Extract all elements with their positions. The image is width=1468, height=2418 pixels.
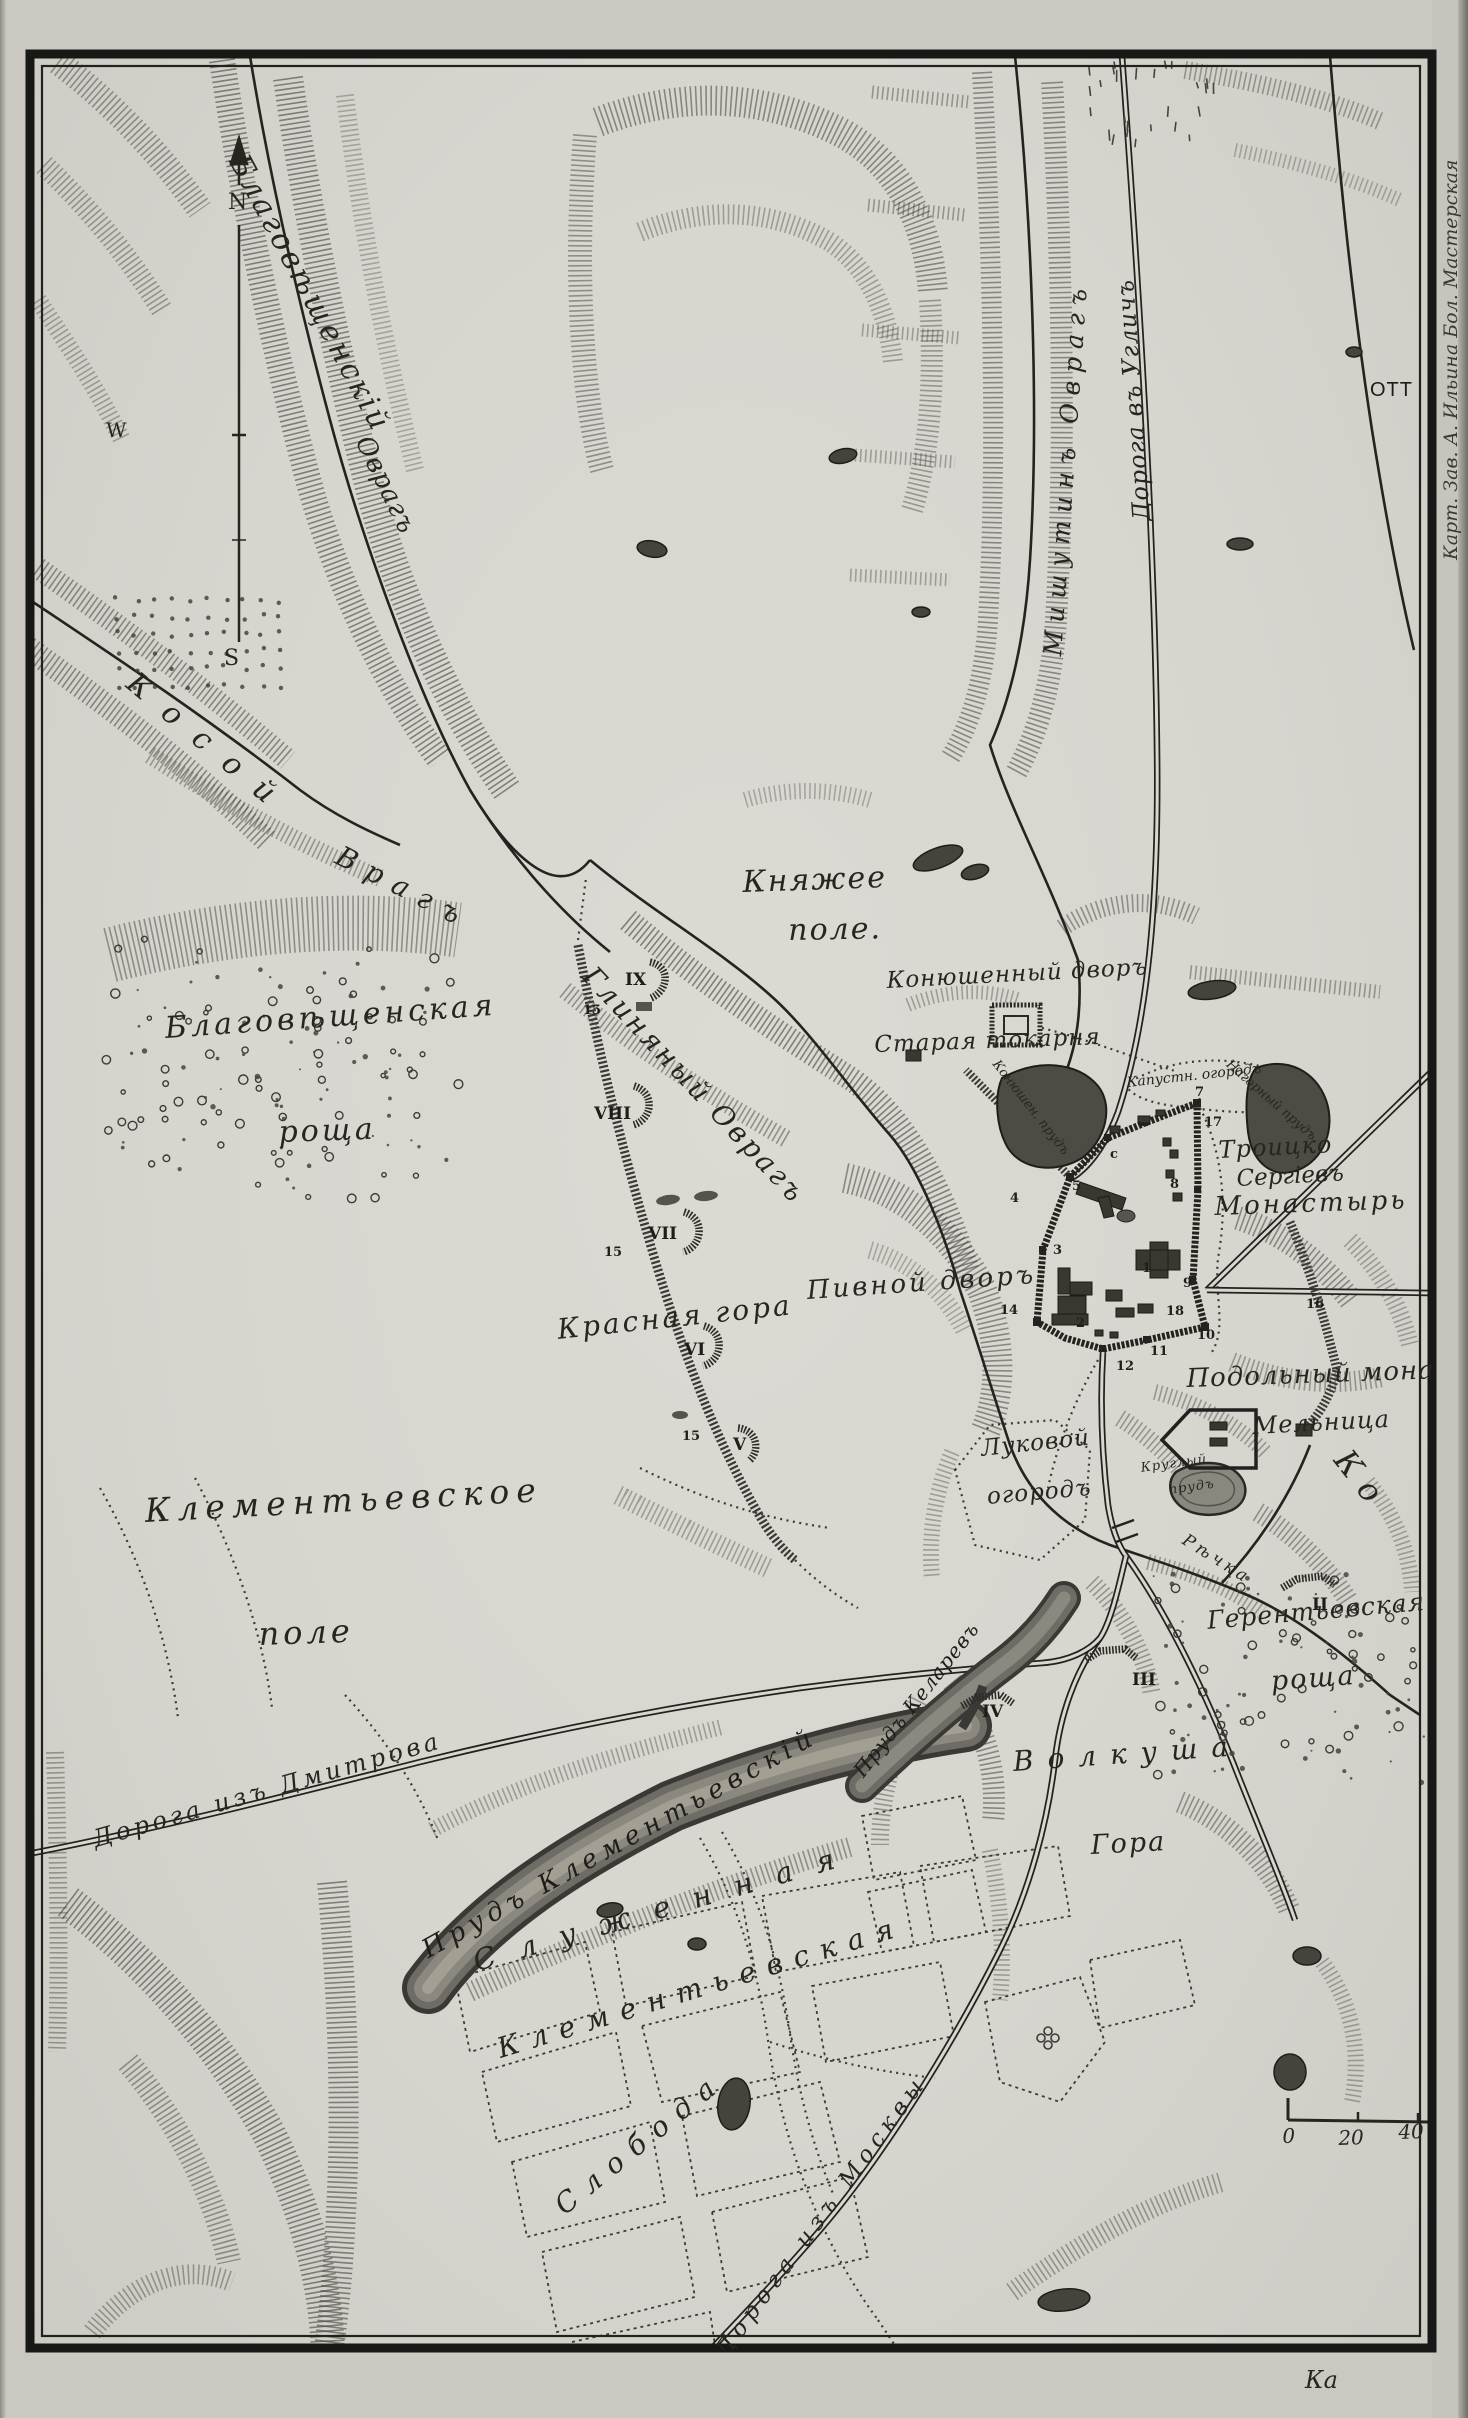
- battery-ii: II: [1312, 1597, 1328, 1614]
- ref-9: 9: [1183, 1277, 1192, 1290]
- compass-west-label: W: [106, 420, 127, 440]
- label-blagoveshchensky-ovrag: Благовѣщенскій: [224, 150, 396, 437]
- label-konyushenny-prud: Конюшен. прудъ: [990, 1058, 1072, 1157]
- battery-vi: VI: [684, 1342, 705, 1359]
- label-blagoveshchensky-ovrag-2: Оврагъ: [351, 432, 420, 538]
- label-kosoy-vrag-2: Врагъ: [331, 842, 476, 934]
- label-knyazhee-pole: Княжее: [742, 863, 887, 898]
- ref-17: 17: [1204, 1116, 1222, 1129]
- label-prud-kelarev: Прудъ Келаревъ: [850, 1618, 983, 1780]
- label-pivnoy-dvor: Пивной дворъ: [806, 1262, 1037, 1304]
- ref-c: c: [1110, 1148, 1118, 1161]
- label-monastery-1: Троицко: [1218, 1132, 1333, 1162]
- scale-20: 20: [1338, 2127, 1364, 2148]
- label-krugly-prud: Круглый: [1140, 1453, 1208, 1475]
- ref-15-b: 15: [604, 1246, 622, 1259]
- label-glinyany-ovrag: Глиняный Оврагъ: [578, 962, 811, 1209]
- ref-18: 18: [1166, 1305, 1184, 1318]
- label-nagorny-prud: Нагорный прудъ: [1223, 1058, 1318, 1143]
- label-klementyevskoe-pole: Клементьевское: [144, 1473, 543, 1527]
- label-melnitsa: Мельница: [1252, 1407, 1391, 1438]
- battery-v: V: [733, 1437, 746, 1454]
- label-road-to-uglich: Дорога въ Угличъ: [1113, 278, 1154, 522]
- edge-fragment-ott: ОТТ: [1370, 380, 1413, 400]
- battery-ix: IX: [625, 972, 646, 989]
- ref-4: 4: [1010, 1192, 1019, 1205]
- label-konyushenny-dvor: Конюшенный дворъ: [886, 956, 1148, 993]
- label-knyazhee-pole-2: поле.: [788, 914, 882, 946]
- label-lukovoy-ogorod-2: огородъ: [986, 1477, 1092, 1509]
- label-road-from-moscow: Дорога изъ Москвы: [712, 2071, 932, 2361]
- label-sloboda: Слобода: [550, 2067, 730, 2220]
- label-krugly-prud-2: прудъ: [1168, 1478, 1216, 1497]
- battery-iv: IV: [982, 1704, 1003, 1721]
- ref-8: 8: [1170, 1178, 1179, 1191]
- ref-5: 5: [1072, 1180, 1081, 1193]
- compass-south-label: S: [224, 648, 239, 670]
- label-rechka: Рѣчка: [1179, 1532, 1254, 1587]
- ref-2: 2: [1076, 1317, 1085, 1330]
- ref-10: 10: [1197, 1329, 1215, 1342]
- label-podolny-monastery: Подольный мона: [1186, 1357, 1435, 1392]
- label-blagov-roshcha-2: роща: [278, 1115, 376, 1148]
- label-road-from-dmitrov: Дорога изъ Дмитрова: [90, 1728, 444, 1851]
- scale-40: 40: [1398, 2121, 1424, 2142]
- label-monastery-2: Сергіевъ: [1236, 1162, 1344, 1191]
- scale-0: 0: [1282, 2126, 1295, 2146]
- ref-15-c: 15: [682, 1430, 700, 1443]
- battery-iii: III: [1132, 1672, 1156, 1689]
- ref-12: 12: [1116, 1360, 1134, 1373]
- compass-north-label: N: [228, 192, 247, 214]
- bottom-margin-fragment: Ка: [1305, 2368, 1338, 2392]
- label-krasnaya-gora: Красная гора: [556, 1291, 794, 1344]
- label-gerentyevskaya-roshcha-2: роща: [1270, 1662, 1356, 1695]
- label-kosoy-vrag: Косой: [121, 668, 298, 823]
- label-volkusha: Волкуша: [1012, 1732, 1243, 1776]
- label-blagov-roshcha: Благовѣщенская: [164, 991, 497, 1044]
- battery-viii: VIII: [594, 1106, 631, 1123]
- ref-15-a: 15: [583, 1004, 601, 1017]
- ref-7: 7: [1195, 1086, 1204, 1099]
- label-lukovoy-ogorod: Луковой: [980, 1427, 1091, 1461]
- label-mishutin-ovrag: Мишутинъ Оврагъ: [1040, 280, 1091, 657]
- map-labels-layer: Благовѣщенскій Оврагъ Косой Врагъ Благов…: [0, 0, 1468, 2418]
- label-klementyevskoe-pole-2: поле: [258, 1615, 354, 1650]
- ref-11: 11: [1150, 1345, 1168, 1358]
- label-konchura-fragment: Ко: [1329, 1444, 1396, 1517]
- printer-imprint: Карт. Зав. А. Ильина Бол. Мастерская: [1440, 159, 1462, 560]
- label-staraya-tokarnya: Старая токарня: [874, 1026, 1101, 1057]
- historical-map-page: Благовѣщенскій Оврагъ Косой Врагъ Благов…: [0, 0, 1468, 2418]
- label-volkusha-gora: Гора: [1090, 1828, 1167, 1859]
- battery-vii: VII: [648, 1226, 677, 1243]
- ref-14: 14: [1000, 1304, 1018, 1317]
- ref-3: 3: [1053, 1244, 1062, 1257]
- label-monastery-3: Монастырь: [1214, 1187, 1408, 1220]
- ref-16: 16: [1306, 1298, 1324, 1311]
- ref-1: 1: [1142, 1262, 1151, 1275]
